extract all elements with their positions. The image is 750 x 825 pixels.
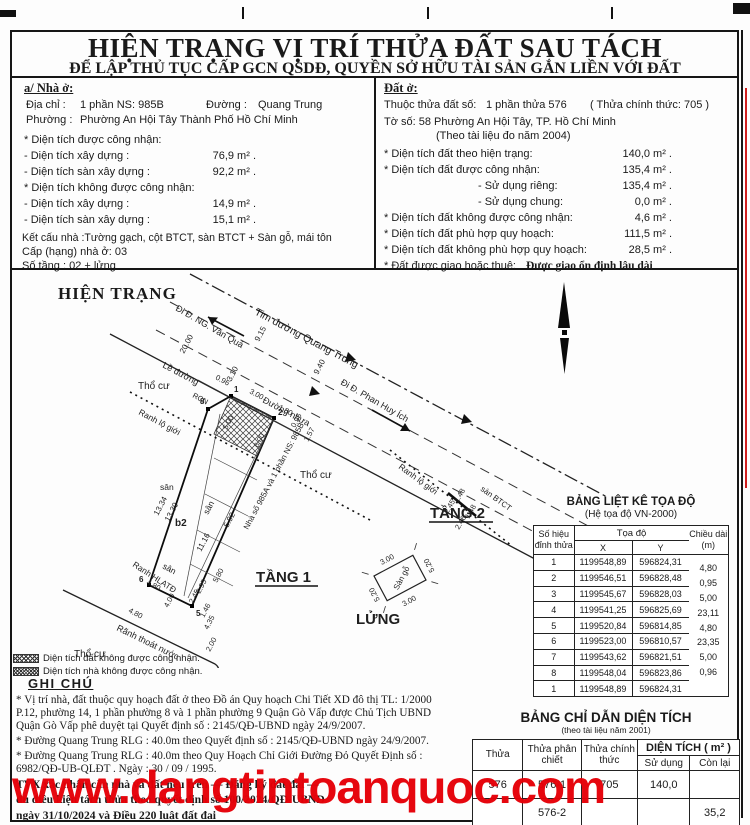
planned-area-value: 111,5 m² . [606,228,672,240]
coord-x: 1199543,62 [575,650,632,666]
dim-9-40: 9.40 [312,357,328,375]
point-id: 2 [534,571,574,587]
red-scan-line [745,88,747,488]
current-area-label: * Diện tích đất theo hiện trạng: [384,148,533,160]
coordinate-table-section: BẢNG LIỆT KÊ TỌA ĐỘ (Hệ tọa độ VN-2000) … [533,496,729,697]
dim-2-00: 2.00 [204,636,219,653]
floor-area2-value: 15,1 m² . [198,214,256,226]
dim-5-92: 5.92 [222,510,238,528]
area-table-subtitle: (theo tài liệu năm 2001) [472,725,740,735]
direction-phan-huy-ich-label: Đi Đ. Phan Huy Ích [339,377,410,424]
legend-item-text: Diện tích nhà không được công nhận. [43,666,202,677]
point-id: 4 [534,602,574,618]
doc-year: (Theo tài liệu đo năm 2004) [436,130,571,142]
coord-x: 1199541,25 [575,602,632,618]
north-arrow-icon [558,282,570,374]
road-tick [309,386,320,396]
build-area2-value: 14,9 m² . [198,198,256,210]
scan-mark [427,7,429,19]
coordinate-table-subtitle: (Hệ tọa độ VN-2000) [533,509,729,520]
legend-item-text: Diện tích đất không được công nhận. [43,653,200,664]
point-id: 8 [534,666,574,682]
segment-length: 0,95 [689,578,729,588]
dim-3-00-lung-bottom: 3.00 [401,593,418,608]
unrecognized-area-label: * Diện tích đất không được công nhận: [384,212,573,224]
dim-20-00: 20.00 [178,333,196,355]
house-info-box: a/ Nhà ở: Địa chỉ : 1 phần NS: 985B Đườn… [10,76,374,268]
scanned-land-survey-document: HIỆN TRẠNG VỊ TRÍ THỬA ĐẤT SAU TÁCH ĐỂ L… [0,0,750,825]
point-id: 1 [534,555,574,571]
address-value: 1 phần NS: 985B [80,99,164,111]
tho-cu-label-1: Thổ cư [138,380,170,392]
notes-heading: GHI CHÚ [28,676,93,691]
grade-line: Cấp (hạng) nhà ở: 03 [22,246,127,258]
vertex-label-1: 1 [234,385,239,394]
san-label-3: sân [201,499,216,516]
unrecognized-area-value: 4,6 m² . [606,212,672,224]
street-value: Quang Trung [258,99,322,111]
coord-x: 1199546,51 [575,571,632,587]
segment-length: 4,80 [689,563,729,573]
build-area-label: - Diện tích xây dựng : [24,150,129,162]
vertex-dot-8 [206,407,210,411]
col-point-header2: đỉnh thửa [535,540,573,551]
private-use-value: 135,4 m² . [606,180,672,192]
floor2-label: TẦNG 2 [430,505,485,522]
building-cross-1 [214,458,257,480]
san-go-label: Sàn gỗ [392,564,412,591]
mezzanine-plan: 3.00 5.20 5.20 3.00 Sàn gỗ [356,537,445,620]
point-id: 5 [534,618,574,634]
col-point-header: Số hiệu [538,529,569,540]
build-area-value: 76,9 m² . [198,150,256,162]
shared-use-value: 0,0 m² . [606,196,672,208]
road-tick [461,414,472,424]
floor1-label: TẦNG 1 [256,569,311,586]
coordinate-table-title: BẢNG LIỆT KÊ TỌA ĐỘ [533,496,729,508]
coord-x: 1199545,67 [575,587,632,603]
segment-length: 23,11 [689,608,729,618]
coord-x: 1199548,04 [575,666,632,682]
current-area-value: 140,0 m² . [606,148,672,160]
unrecognized-heading: * Diện tích không được công nhận: [24,182,195,194]
coordinate-table: Số hiệu đỉnh thửa 1 2 3 4 5 6 7 8 1 Tọa … [533,525,729,697]
coord-x: 1199523,00 [575,634,632,650]
ward-label: Phường : [26,114,72,126]
parcel-dimension-labels: 13.34 13.30 11.16 5.92 5.80 2.95 2.45 1.… [127,421,306,631]
coord-y: 596810,57 [633,634,689,650]
col-length-header: Chiều dài [689,529,727,540]
plot-label: Thuộc thửa đất số: [384,99,476,111]
b2-label: b2 [175,518,187,529]
col-y-header: Y [633,541,689,555]
ranh-lo-gioi-label-2: Ranh lộ giới [397,462,440,497]
san-label-1: sân [160,482,174,492]
area-table-title: BẢNG CHỈ DẪN DIỆN TÍCH [472,710,740,725]
coord-y: 596823,86 [633,666,689,682]
segment-length: 5,00 [689,652,729,662]
dim-9-15: 9.15 [253,324,269,342]
dim-11-16: 11.16 [195,531,212,553]
vertex-label-6: 6 [139,575,144,584]
unplanned-area-value: 28,5 m² . [606,244,672,256]
build-area2-label: - Diện tích xây dựng : [24,198,129,210]
floor2-fragment: Ranh lộ giới 2.45 1.48 2.46 1.48 sàn BTC… [390,450,513,546]
structure-line: Kết cấu nhà :Tường gạch, cột BTCT, sàn B… [22,232,332,244]
col-area-header: DIỆN TÍCH ( m² ) [638,740,739,756]
col-coord-header: Tọa độ [575,526,689,541]
dim-5-20-right: 5.20 [422,557,437,574]
coord-y: 596825,69 [633,602,689,618]
coord-x: 1199548,89 [575,681,632,696]
dim-3-00-lung-top: 3.00 [378,552,395,567]
recognized-area-label: * Diện tích đất được công nhận: [384,164,540,176]
col-length-header2: (m) [702,540,716,551]
scan-mark [242,7,244,19]
scan-mark [611,7,613,19]
plot-official: ( Thửa chính thức: 705 ) [590,99,709,111]
legend: Diện tích đất không được công nhận. Diện… [13,652,202,678]
address-label: Địa chỉ : [26,99,66,111]
road-name-label: Tim đường Quang Trung [253,306,361,371]
segment-length: 4,80 [689,623,729,633]
san-label-2: sân [161,561,178,576]
coord-y: 596821,51 [633,650,689,666]
house-heading: a/ Nhà ở: [24,81,73,96]
unplanned-area-label: * Diện tích đất không phù hợp quy hoạch: [384,244,587,256]
col-x-header: X [575,541,632,555]
scan-mark [0,10,16,17]
road-edge-dashed-2 [156,330,568,550]
coord-y: 596828,48 [633,571,689,587]
note-item: * Vị trí nhà, đất thuộc quy hoạch đất ở … [16,694,452,733]
point-id: 1 [534,681,574,696]
shared-use-label: - Sử dụng chung: [478,196,563,208]
point-id: 3 [534,587,574,603]
vertex-dot-2 [272,416,276,420]
dim-4-80-b: 4.80 [127,606,144,621]
point-id: 6 [534,634,574,650]
coord-y: 596824,31 [633,681,689,696]
dim-5-20-left: 5.20 [367,586,382,603]
segment-length: 5,00 [689,593,729,603]
recognized-area-value: 135,4 m² . [606,164,672,176]
coord-x: 1199520,84 [575,618,632,634]
sheet-line: Tờ số: 58 Phường An Hội Tây, TP. Hồ Chí … [384,116,616,128]
coord-x: 1199548,89 [575,555,632,571]
tho-cu-label-2: Thổ cư [300,469,332,481]
watermark-url: www.dangtintoanquoc.com [12,760,750,814]
floor-area-label: - Diện tích sàn xây dựng : [24,166,150,178]
legend-hatch-land-icon [13,654,39,663]
coord-y: 596824,31 [633,555,689,571]
private-use-label: - Sử dụng riêng: [478,180,558,192]
street-label: Đường : [206,99,247,111]
coord-y: 596828,03 [633,587,689,603]
floor-area2-label: - Diện tích sàn xây dựng : [24,214,150,226]
scan-mark [733,3,750,14]
segment-length: 0,96 [689,667,729,677]
page-border-outer [741,30,743,818]
recognized-heading: * Diện tích được công nhận: [24,134,162,146]
floor-area-value: 92,2 m² . [198,166,256,178]
segment-length: 23,35 [689,637,729,647]
coord-y: 596814,85 [633,618,689,634]
land-info-box: Đất ở: Thuộc thửa đất số: 1 phần thửa 57… [374,76,737,268]
road-centerline [190,274,607,497]
plot-value: 1 phần thửa 576 [486,99,567,111]
point-id: 7 [534,650,574,666]
land-heading: Đất ở: [384,81,418,96]
mezzanine-label: LỬNG [356,610,400,628]
dim-4-00: 4.00 [162,592,177,609]
building-cross-4 [190,564,233,586]
planned-area-label: * Diện tích đất phù hợp quy hoạch: [384,228,554,240]
legend-hatch-house-icon [13,667,39,676]
ward-value: Phường An Hội Tây Thành Phố Hồ Chí Minh [80,114,298,126]
note-item: * Đường Quang Trung RLG : 40.0m theo Quy… [16,735,452,748]
ranh-lo-gioi-label-1: Ranh lộ giới [137,407,182,437]
